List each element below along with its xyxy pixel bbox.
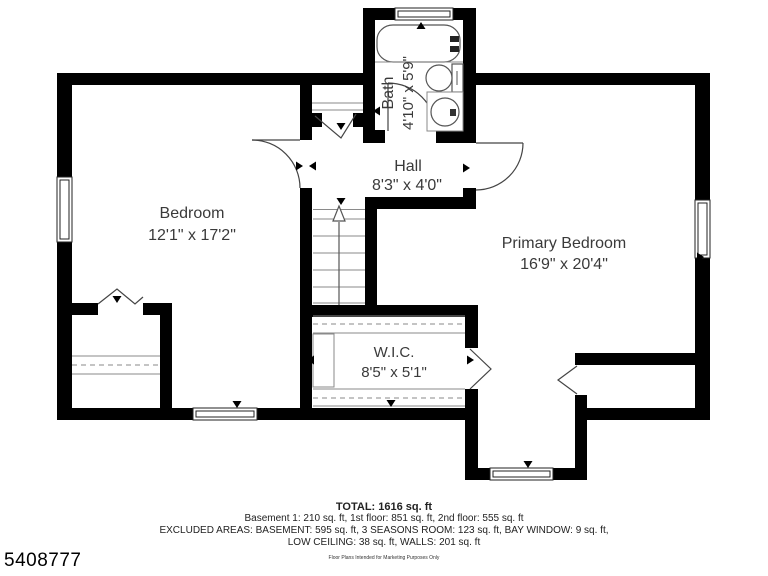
wall	[363, 130, 385, 143]
wall	[463, 8, 476, 143]
wall	[463, 188, 476, 209]
window-bath	[395, 8, 453, 20]
hall-closet-shelf	[312, 103, 363, 110]
toilet	[426, 64, 463, 92]
tub-faucet-icon	[450, 36, 459, 42]
floor-areas-line: Basement 1: 210 sq. ft, 1st floor: 851 s…	[0, 513, 768, 525]
listing-id: 5408777	[4, 550, 81, 572]
wall	[363, 8, 395, 20]
window-left	[57, 177, 72, 242]
wall	[257, 408, 467, 420]
sink-vanity	[427, 92, 463, 131]
wic-shelf-unit	[313, 334, 334, 387]
wall	[436, 130, 476, 143]
wall	[57, 408, 193, 420]
tub-faucet-icon	[450, 46, 459, 52]
sink-drain-icon	[450, 109, 456, 116]
wall	[575, 353, 695, 365]
wic-bifold-door	[470, 349, 491, 389]
bathtub	[377, 25, 460, 62]
wic-rods	[313, 316, 465, 406]
wall	[72, 303, 98, 315]
stairs-up-arrow-icon	[333, 206, 345, 221]
bedroom-label: Bedroom	[160, 205, 225, 222]
wall	[575, 395, 587, 480]
hall-dims: 8'3" x 4'0"	[372, 177, 442, 194]
floor-plan-drawing: Bedroom 12'1" x 17'2" Hall 8'3" x 4'0" P…	[0, 0, 768, 496]
wall	[353, 113, 363, 127]
hall-label: Hall	[394, 158, 422, 175]
primary-bedroom-label: Primary Bedroom	[502, 235, 626, 252]
wall	[695, 73, 710, 200]
wall	[365, 197, 463, 209]
bedroom-closet-rod	[72, 356, 160, 374]
wic-dims: 8'5" x 5'1"	[361, 364, 427, 381]
wall	[300, 188, 312, 420]
wall	[365, 197, 377, 317]
bath-dims: 4'10" x 5'9"	[400, 56, 417, 130]
wall	[695, 258, 710, 420]
window-extension	[490, 468, 553, 480]
room-labels: Bedroom 12'1" x 17'2" Hall 8'3" x 4'0" P…	[148, 56, 626, 381]
window-right	[695, 200, 710, 258]
wic-label: W.I.C.	[374, 344, 415, 361]
primary-bedroom-dims: 16'9" x 20'4"	[520, 256, 608, 273]
wall	[465, 389, 478, 480]
wall	[363, 8, 375, 143]
bath-label: Bath	[380, 77, 397, 110]
wall	[465, 468, 490, 480]
primary-bedroom-door	[476, 143, 523, 190]
disclaimer-text: Floor Plans Intended for Marketing Purpo…	[0, 555, 768, 561]
wall	[300, 85, 312, 140]
wall	[160, 303, 172, 408]
wall	[57, 242, 72, 420]
excluded-areas-line-2: LOW CEILING: 38 sq. ft, WALLS: 201 sq. f…	[0, 537, 768, 549]
excluded-areas-line-1: EXCLUDED AREAS: BASEMENT: 595 sq. ft, 3 …	[0, 525, 768, 537]
wall	[57, 73, 375, 85]
window-bedroom-bottom	[193, 408, 257, 420]
bedroom-dims: 12'1" x 17'2"	[148, 227, 236, 244]
primary-closet-bifold-door	[558, 366, 577, 394]
wall	[587, 408, 710, 420]
wall	[57, 73, 72, 177]
total-area-line: TOTAL: 1616 sq. ft	[0, 501, 768, 513]
wall	[465, 305, 478, 348]
area-summary: TOTAL: 1616 sq. ft Basement 1: 210 sq. f…	[0, 501, 768, 561]
bedroom-door	[252, 140, 300, 188]
floor-plan-page: Bedroom 12'1" x 17'2" Hall 8'3" x 4'0" P…	[0, 0, 768, 576]
staircase	[313, 206, 365, 305]
wall	[463, 73, 710, 85]
